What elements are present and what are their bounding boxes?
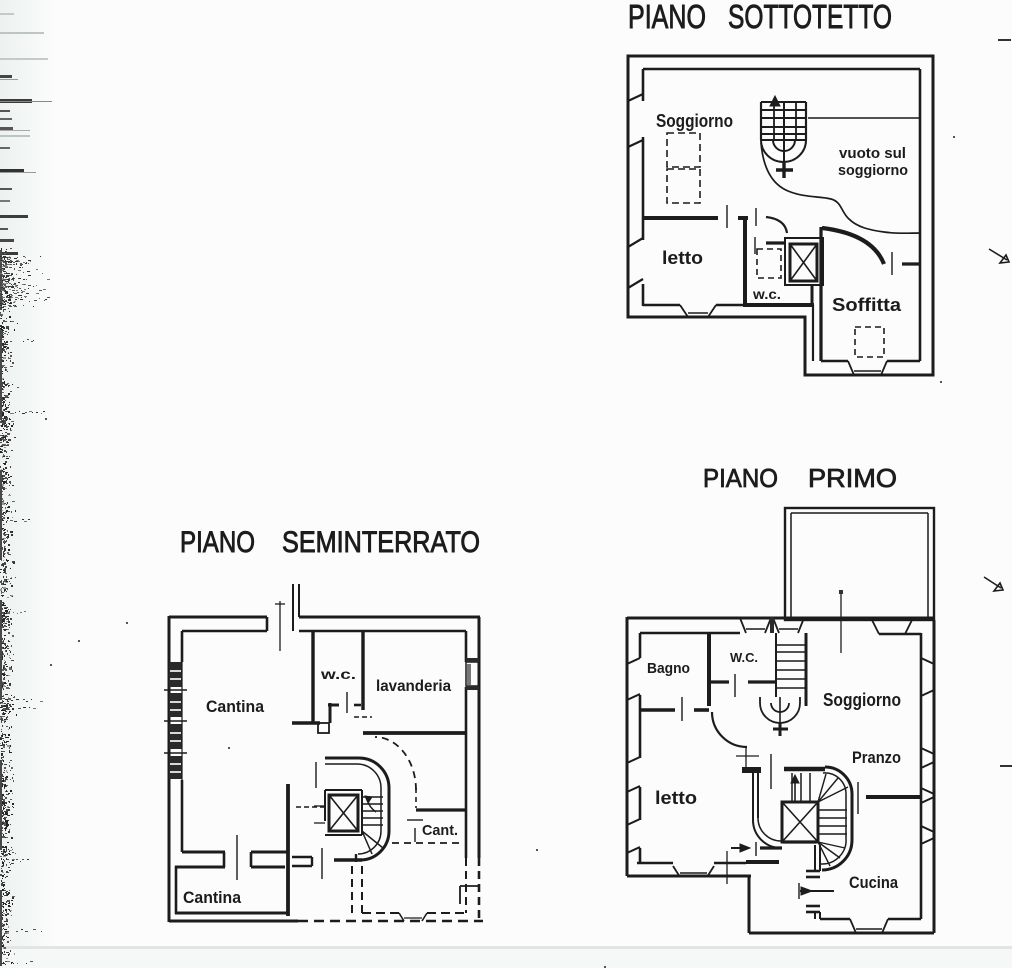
svg-text:letto: letto: [662, 248, 703, 268]
svg-text:W.C.: W.C.: [730, 650, 758, 665]
svg-text:Cucina: Cucina: [849, 873, 898, 892]
svg-text:Soggiorno: Soggiorno: [656, 111, 733, 131]
svg-text:Cant.: Cant.: [422, 822, 458, 839]
svg-text:PIANO: PIANO: [180, 526, 255, 559]
svg-text:PRIMO: PRIMO: [808, 463, 897, 493]
svg-text:Bagno: Bagno: [647, 660, 690, 677]
svg-text:Soffitta: Soffitta: [832, 295, 902, 315]
svg-text:Cantina: Cantina: [206, 697, 265, 716]
svg-text:Pranzo: Pranzo: [852, 748, 901, 767]
svg-text:Cantina: Cantina: [183, 888, 242, 907]
svg-text:letto: letto: [655, 788, 697, 808]
svg-text:Soggiorno: Soggiorno: [823, 690, 901, 710]
svg-text:PIANO: PIANO: [703, 463, 778, 493]
svg-text:soggiorno: soggiorno: [838, 162, 908, 179]
svg-text:SOTTOTETTO: SOTTOTETTO: [728, 0, 892, 35]
svg-text:vuoto sul: vuoto sul: [839, 145, 906, 162]
svg-text:SEMINTERRATO: SEMINTERRATO: [282, 526, 480, 559]
svg-text:w.c.: w.c.: [752, 286, 781, 302]
svg-text:PIANO: PIANO: [628, 0, 706, 35]
svg-text:w.c.: w.c.: [320, 666, 356, 682]
svg-text:lavanderia: lavanderia: [376, 678, 451, 695]
